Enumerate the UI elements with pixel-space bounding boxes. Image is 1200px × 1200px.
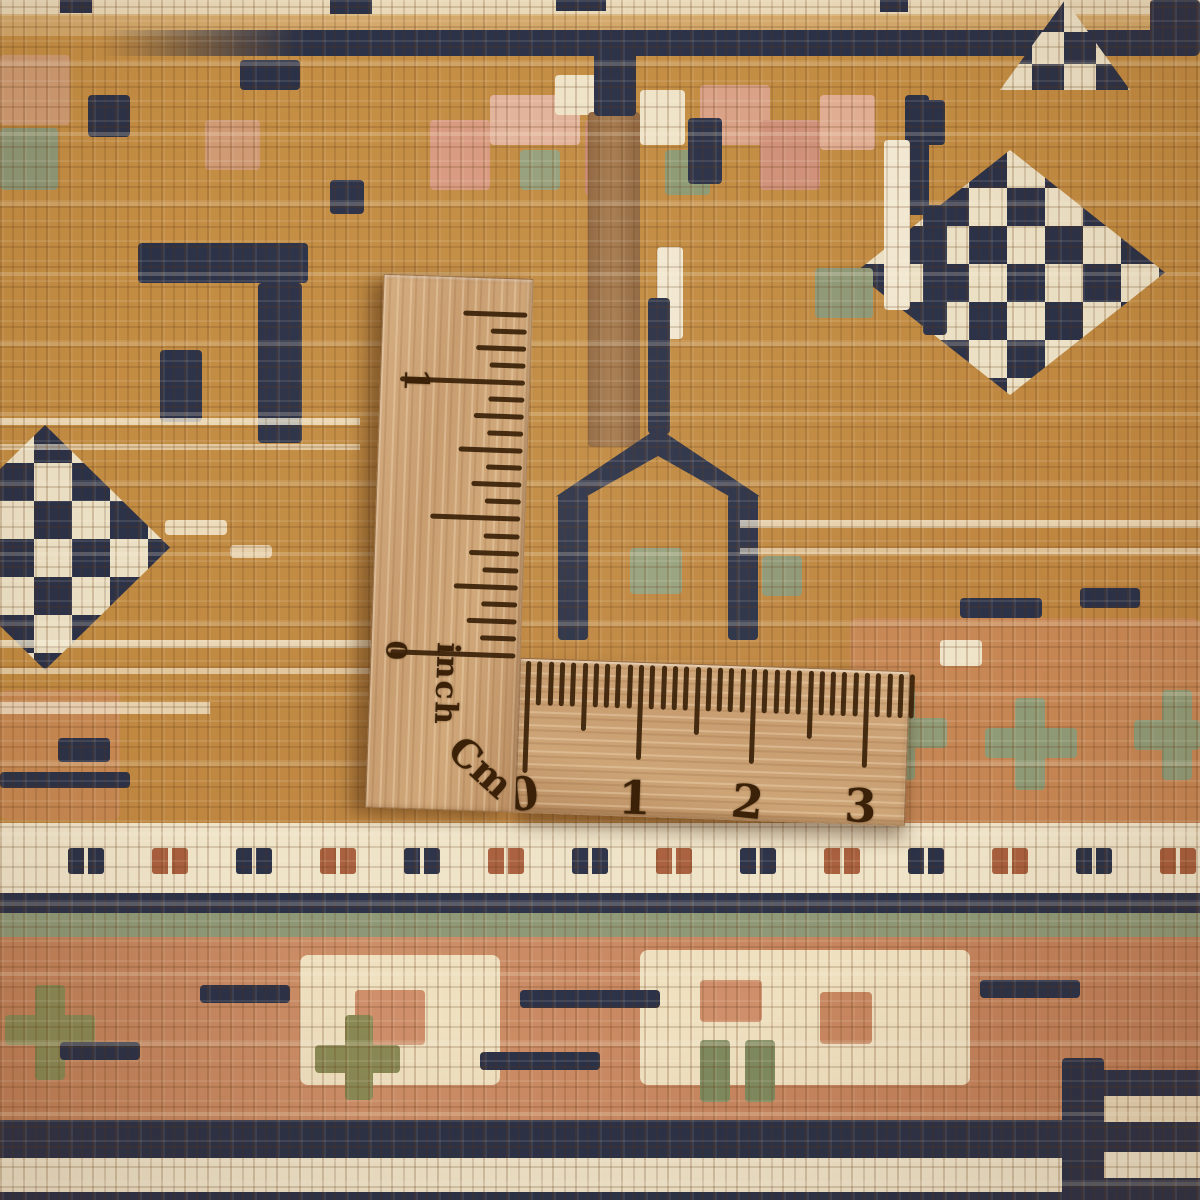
cm-tick bbox=[570, 662, 577, 706]
cm-tick bbox=[749, 669, 757, 764]
sage-motif bbox=[520, 150, 560, 190]
navy-motif bbox=[330, 180, 364, 214]
cm-tick bbox=[862, 673, 870, 768]
rose-motif bbox=[820, 95, 875, 150]
band-dot-navy bbox=[1076, 848, 1112, 874]
olive-bar bbox=[700, 1040, 730, 1102]
navy-dash bbox=[980, 980, 1080, 998]
rose-motif bbox=[760, 120, 820, 190]
cm-tick bbox=[796, 670, 803, 714]
inch-tick bbox=[474, 413, 524, 420]
salmon-band bbox=[0, 937, 1200, 1122]
navy-step-bar bbox=[160, 350, 202, 422]
ruler-cm-arm: 0 1 2 3 bbox=[515, 658, 910, 827]
navy-dash bbox=[200, 985, 290, 1003]
band-dot-rust bbox=[824, 848, 860, 874]
inch-number-1: 1 bbox=[395, 360, 436, 399]
cm-tick bbox=[705, 667, 712, 711]
cm-tick bbox=[693, 667, 700, 735]
band-dot-rust bbox=[152, 848, 188, 874]
inch-number-0: 0 bbox=[380, 634, 411, 667]
cm-tick bbox=[672, 666, 679, 710]
inch-tick bbox=[485, 499, 521, 505]
band-dot-navy bbox=[404, 848, 440, 874]
inch-tick bbox=[454, 583, 518, 590]
weft-line bbox=[0, 444, 360, 450]
inch-tick bbox=[486, 465, 522, 471]
band-dot-navy bbox=[236, 848, 272, 874]
navy-dash bbox=[1080, 588, 1140, 608]
inch-tick bbox=[430, 514, 520, 522]
olive-cross bbox=[5, 1015, 95, 1045]
cm-tick bbox=[773, 670, 780, 714]
cm-tick bbox=[683, 666, 690, 710]
wooden-ruler: 0 1 2 3 1 0 inch Cm bbox=[365, 274, 929, 833]
salmon-inner bbox=[820, 992, 872, 1044]
cm-tick bbox=[536, 661, 543, 705]
rose-motif bbox=[430, 120, 490, 190]
inch-tick bbox=[463, 310, 527, 317]
cm-tick bbox=[818, 671, 825, 715]
inch-tick bbox=[467, 618, 517, 625]
corner-stripe bbox=[1104, 1152, 1200, 1178]
cm-tick bbox=[841, 672, 848, 716]
cream-band-dots bbox=[0, 846, 1200, 876]
cm-tick bbox=[592, 663, 599, 707]
top-band-dot bbox=[60, 0, 92, 13]
cm-tick bbox=[649, 665, 656, 709]
cm-tick bbox=[626, 664, 633, 708]
top-band-dot bbox=[330, 0, 372, 14]
cm-tick bbox=[604, 664, 611, 708]
checker-diamond-left bbox=[0, 425, 170, 670]
corner-stripe bbox=[1104, 1122, 1200, 1152]
cm-tick bbox=[580, 663, 587, 731]
corner-stripe bbox=[1104, 1178, 1200, 1200]
navy-dash bbox=[0, 772, 130, 788]
navy-step-bar bbox=[138, 243, 308, 283]
band-dot-rust bbox=[488, 848, 524, 874]
corner-stripe bbox=[1104, 1096, 1200, 1122]
cm-tick bbox=[886, 674, 893, 718]
cream-bar bbox=[884, 140, 910, 310]
weft-line bbox=[230, 545, 272, 558]
inch-scale-label: inch bbox=[426, 638, 467, 731]
olive-cross bbox=[315, 1045, 400, 1073]
cm-tick bbox=[660, 666, 667, 710]
cream-motif bbox=[640, 90, 685, 145]
weft-line bbox=[0, 668, 400, 674]
cm-tick bbox=[762, 669, 769, 713]
cm-tick bbox=[806, 671, 813, 739]
navy-stripe bbox=[0, 1120, 1200, 1158]
cm-tick bbox=[784, 670, 791, 714]
cm-number-2: 2 bbox=[723, 773, 772, 831]
navy-dash bbox=[58, 738, 110, 762]
cm-tick bbox=[522, 661, 531, 773]
navy-stripe bbox=[0, 1192, 1200, 1200]
corner-stripe bbox=[1104, 1070, 1200, 1096]
cm-tick bbox=[728, 668, 735, 712]
salmon-motif bbox=[205, 120, 260, 170]
inch-tick bbox=[482, 567, 518, 573]
olive-bar bbox=[745, 1040, 775, 1102]
band-dot-navy bbox=[572, 848, 608, 874]
inch-ticks bbox=[366, 275, 532, 812]
cm-tick bbox=[636, 665, 644, 760]
sage-motif bbox=[0, 128, 58, 190]
cm-tick bbox=[830, 672, 837, 716]
cream-motif bbox=[940, 640, 982, 666]
cream-stripe bbox=[0, 1158, 1200, 1192]
band-dot-rust bbox=[320, 848, 356, 874]
navy-motif bbox=[240, 60, 300, 90]
band-dot-navy bbox=[68, 848, 104, 874]
cm-tick bbox=[559, 662, 566, 706]
band-dot-navy bbox=[740, 848, 776, 874]
weft-line bbox=[0, 418, 360, 425]
weft-line bbox=[165, 520, 227, 535]
cm-number-1: 1 bbox=[612, 770, 658, 826]
cm-tick bbox=[852, 672, 859, 716]
weft-line bbox=[0, 640, 400, 648]
cm-tick bbox=[717, 668, 724, 712]
cm-tick bbox=[875, 673, 882, 717]
cm-tick bbox=[547, 662, 554, 706]
corner-navy-bar bbox=[1062, 1058, 1104, 1200]
navy-motif bbox=[594, 52, 636, 116]
inch-tick bbox=[469, 549, 519, 556]
inch-tick bbox=[480, 635, 516, 641]
navy-motif bbox=[1150, 0, 1200, 42]
sage-stripe bbox=[0, 913, 1200, 937]
cm-tick bbox=[739, 668, 746, 712]
ruler-inch-arm: 1 0 inch Cm bbox=[365, 274, 534, 813]
cream-blob bbox=[640, 950, 970, 1085]
navy-motif bbox=[688, 118, 722, 184]
inch-tick bbox=[491, 328, 527, 334]
inch-tick bbox=[484, 533, 520, 539]
inch-tick bbox=[481, 601, 517, 607]
band-dot-navy bbox=[908, 848, 944, 874]
inch-tick bbox=[459, 447, 523, 454]
band-dot-rust bbox=[1160, 848, 1196, 874]
cm-tick bbox=[615, 664, 622, 708]
inch-tick bbox=[487, 431, 523, 437]
salmon-motif bbox=[0, 55, 70, 125]
sage-cross bbox=[1134, 720, 1200, 750]
sage-cross bbox=[985, 728, 1077, 758]
navy-stripe bbox=[0, 893, 1200, 913]
carpet-photo-scene: 0 1 2 3 1 0 inch Cm bbox=[0, 0, 1200, 1200]
navy-dash bbox=[520, 990, 660, 1008]
navy-motif bbox=[88, 95, 130, 137]
navy-dash bbox=[480, 1052, 600, 1070]
cm-number-3: 3 bbox=[837, 778, 883, 834]
band-dot-rust bbox=[992, 848, 1028, 874]
inch-tick bbox=[471, 481, 521, 488]
inch-tick bbox=[476, 345, 526, 352]
top-band-dot bbox=[880, 0, 908, 12]
top-band-dot bbox=[556, 0, 606, 11]
weft-line bbox=[0, 702, 210, 714]
inch-tick bbox=[488, 396, 524, 402]
salmon-inner bbox=[700, 980, 762, 1022]
band-dot-rust bbox=[656, 848, 692, 874]
navy-dash bbox=[960, 598, 1042, 618]
inch-tick bbox=[489, 362, 525, 368]
navy-dash bbox=[60, 1042, 140, 1060]
cm-tick bbox=[897, 674, 904, 718]
